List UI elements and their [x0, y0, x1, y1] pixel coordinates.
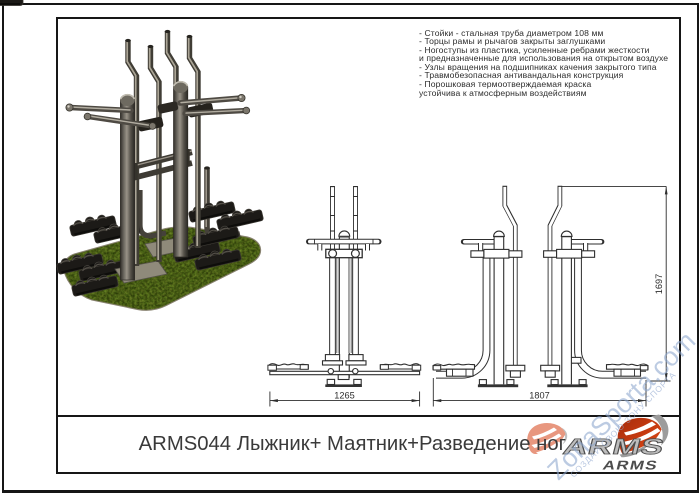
svg-text:ARMS: ARMS — [601, 459, 660, 473]
svg-text:1697: 1697 — [654, 274, 664, 294]
svg-text:1807: 1807 — [529, 390, 549, 400]
svg-text:1265: 1265 — [334, 391, 354, 401]
